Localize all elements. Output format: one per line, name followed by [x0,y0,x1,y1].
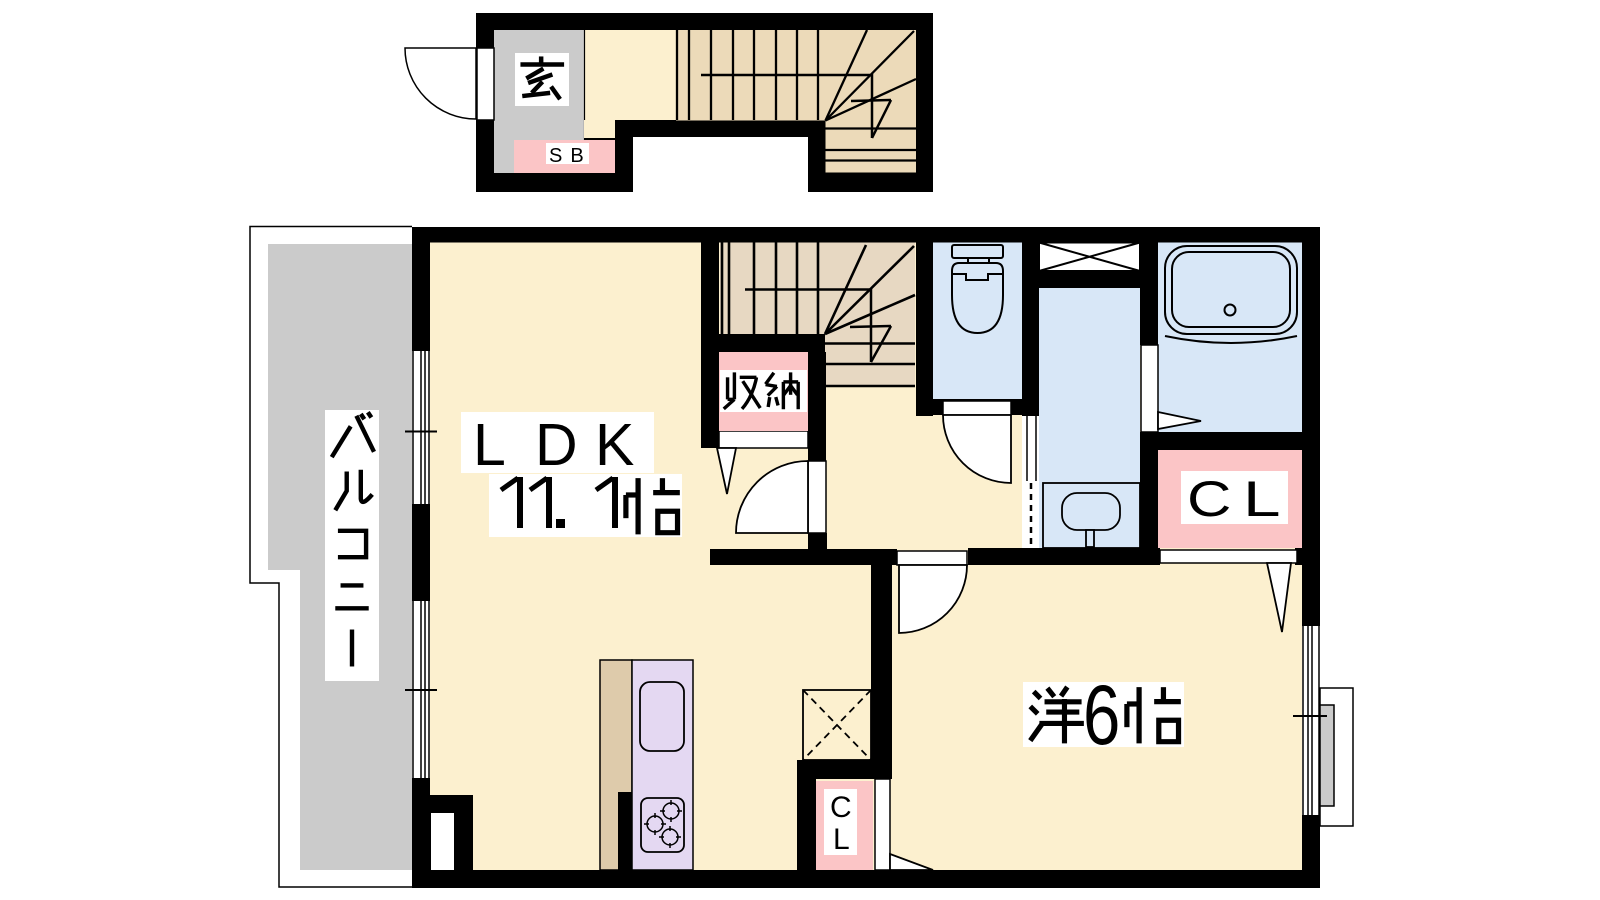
svg-text:SB: SB [549,145,592,167]
svg-text:C: C [830,791,852,824]
svg-text:D: D [535,412,578,478]
svg-text:L: L [833,823,850,856]
svg-text:6: 6 [1083,669,1120,763]
svg-text:K: K [595,412,634,478]
svg-text:C: C [1187,471,1231,527]
svg-text:L: L [1243,471,1281,527]
svg-text:L: L [473,412,506,478]
